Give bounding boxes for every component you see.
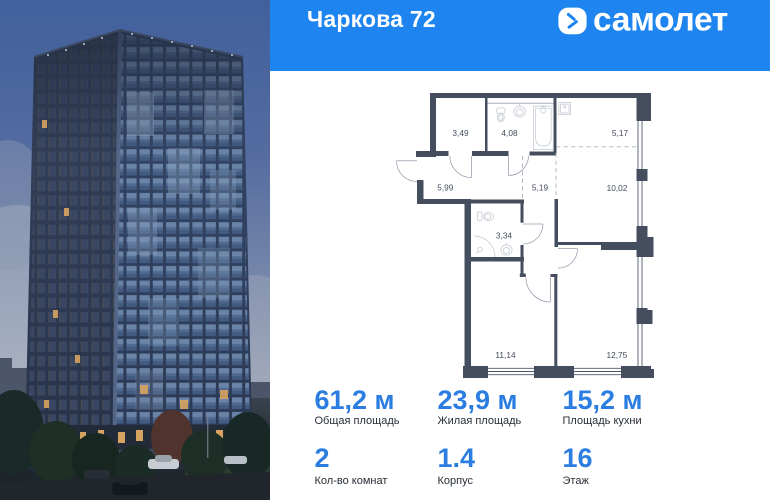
svg-text:11,14: 11,14 bbox=[495, 350, 516, 360]
svg-text:5,99: 5,99 bbox=[437, 183, 454, 193]
svg-text:4,08: 4,08 bbox=[501, 128, 518, 138]
svg-text:3,34: 3,34 bbox=[496, 231, 513, 241]
svg-text:12,75: 12,75 bbox=[607, 350, 628, 360]
svg-text:10,02: 10,02 bbox=[607, 183, 628, 193]
svg-text:3,49: 3,49 bbox=[452, 128, 469, 138]
svg-text:5,17: 5,17 bbox=[612, 128, 629, 138]
svg-text:5,19: 5,19 bbox=[532, 183, 549, 193]
